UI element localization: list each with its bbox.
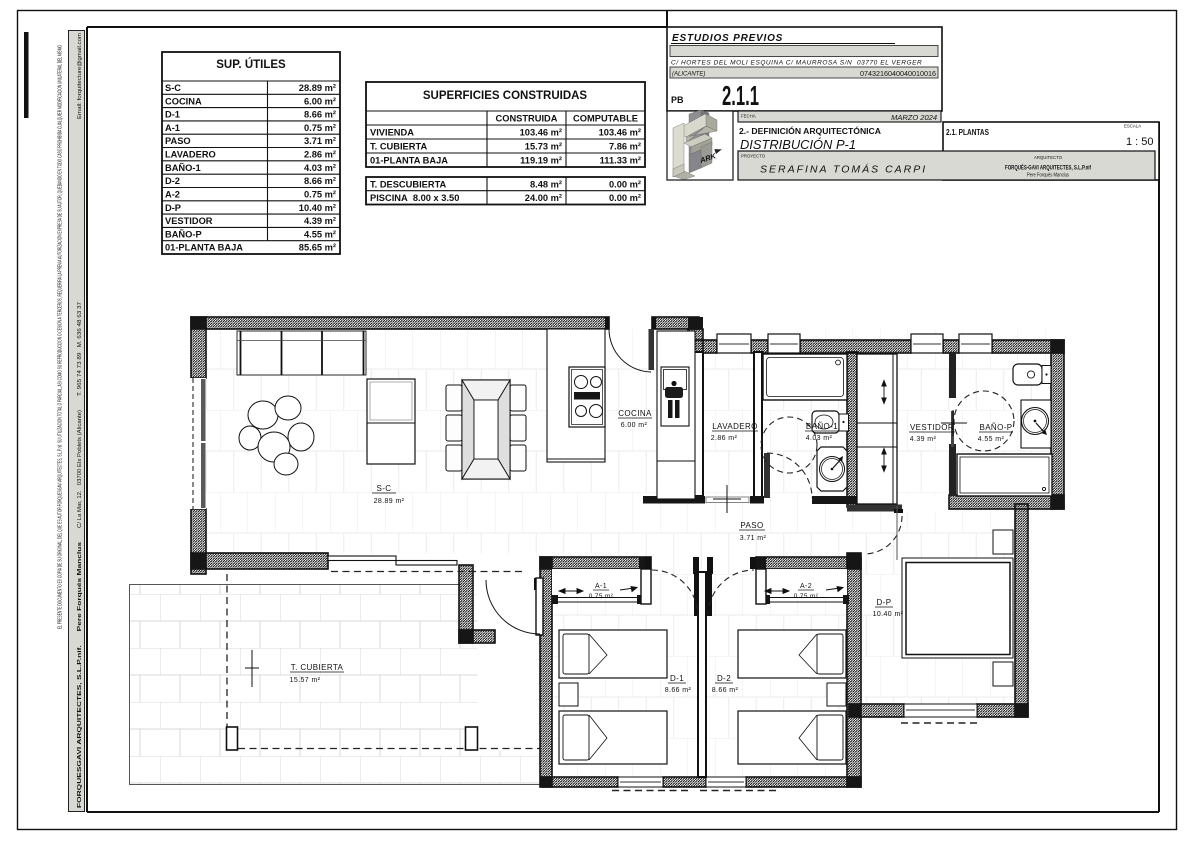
svg-text:01-PLANTA BAJA: 01-PLANTA BAJA (370, 156, 448, 166)
svg-text:COCINA: COCINA (165, 96, 202, 106)
svg-text:BAÑO-P: BAÑO-P (979, 423, 1012, 432)
svg-text:C/ La Mar, 12. 03700 Els Pob: C/ La Mar, 12. 03700 Els Poblets (Alican… (77, 410, 83, 528)
svg-text:28.89 m²: 28.89 m² (374, 498, 405, 505)
svg-text:0.75 m²: 0.75 m² (304, 190, 336, 200)
svg-text:PASO: PASO (740, 521, 763, 530)
svg-text:2.86 m²: 2.86 m² (304, 150, 336, 160)
svg-text:0743216040040010016: 0743216040040010016 (860, 69, 936, 78)
svg-text:10.40 m²: 10.40 m² (873, 611, 904, 618)
svg-text:3.71 m²: 3.71 m² (304, 136, 336, 146)
svg-text:103.46 m²: 103.46 m² (520, 128, 562, 138)
svg-text:24.00 m²: 24.00 m² (525, 193, 562, 203)
svg-text:ARQUITECTO: ARQUITECTO (1034, 155, 1063, 160)
svg-text:A-1: A-1 (595, 583, 607, 590)
svg-text:PROYECTO: PROYECTO (741, 154, 766, 159)
svg-text:FORQUESGAVI ARQUITECTES, S.L.P: FORQUESGAVI ARQUITECTES, S.L.P.nif. Pere… (77, 542, 83, 808)
svg-text:2.1.1: 2.1.1 (722, 80, 759, 111)
svg-text:4.55 m²: 4.55 m² (978, 436, 1005, 443)
svg-text:(ALICANTE): (ALICANTE) (672, 72, 705, 78)
svg-text:ESCALA: ESCALA (1124, 124, 1141, 129)
svg-text:01-PLANTA BAJA: 01-PLANTA BAJA (165, 243, 243, 253)
svg-text:6.00 m²: 6.00 m² (621, 422, 648, 429)
svg-text:BAÑO-P: BAÑO-P (165, 229, 202, 239)
svg-text:85.65 m²: 85.65 m² (299, 243, 336, 253)
svg-text:A-2: A-2 (165, 190, 180, 200)
svg-text:3.71 m²: 3.71 m² (740, 535, 767, 542)
svg-text:0.75 m²: 0.75 m² (304, 123, 336, 133)
svg-text:6.00 m²: 6.00 m² (304, 96, 336, 106)
svg-text:8.66 m²: 8.66 m² (712, 687, 739, 694)
svg-text:MARZO 2024: MARZO 2024 (891, 113, 937, 122)
svg-text:T. CUBIERTA: T. CUBIERTA (370, 142, 427, 152)
svg-text:15.73 m²: 15.73 m² (525, 142, 562, 152)
svg-text:D-P: D-P (165, 203, 181, 213)
svg-text:D-2: D-2 (165, 176, 180, 186)
svg-text:CONSTRUIDA: CONSTRUIDA (496, 114, 558, 124)
svg-text:T. 965 74 73 89 M. 636 48 63: T. 965 74 73 89 M. 636 48 63 37 (77, 302, 83, 396)
svg-text:DISTRIBUCIÓN P-1: DISTRIBUCIÓN P-1 (740, 137, 856, 152)
svg-text:EL PRESENTE DOCUMENTO ES COPIA: EL PRESENTE DOCUMENTO ES COPIA DE SU ORI… (58, 45, 64, 629)
svg-text:ESTUDIOS PREVIOS: ESTUDIOS PREVIOS (672, 33, 783, 44)
svg-text:15.57 m²: 15.57 m² (290, 677, 321, 684)
svg-text:D-P: D-P (877, 598, 892, 607)
svg-text:4.39 m²: 4.39 m² (910, 436, 937, 443)
svg-text:FECHA: FECHA (741, 114, 756, 119)
svg-text:0.00 m²: 0.00 m² (609, 193, 641, 203)
svg-text:PASO: PASO (165, 136, 191, 146)
svg-text:2.1. PLANTAS: 2.1. PLANTAS (946, 128, 989, 137)
svg-text:S-C: S-C (377, 484, 392, 493)
svg-text:Pere Forqués Manclus: Pere Forqués Manclus (1027, 173, 1069, 179)
svg-text:119.19 m²: 119.19 m² (520, 156, 562, 166)
svg-text:A-1: A-1 (165, 123, 180, 133)
svg-text:C/ HORTES DEL MOLI ESQUINA C/: C/ HORTES DEL MOLI ESQUINA C/ MAURROSA S… (671, 60, 922, 67)
svg-text:SERAFINA TOMÁS CARPI: SERAFINA TOMÁS CARPI (760, 163, 927, 176)
svg-text:8.48 m²: 8.48 m² (530, 180, 562, 190)
svg-text:D-1: D-1 (165, 110, 180, 120)
svg-text:1 : 50: 1 : 50 (1126, 136, 1154, 148)
svg-text:2.86 m²: 2.86 m² (711, 435, 738, 442)
svg-text:S-C: S-C (165, 83, 181, 93)
svg-text:8.66 m²: 8.66 m² (304, 110, 336, 120)
svg-text:103.46 m²: 103.46 m² (599, 128, 641, 138)
svg-text:LAVADERO: LAVADERO (712, 422, 758, 431)
svg-text:4.39 m²: 4.39 m² (304, 216, 336, 226)
svg-text:T. DESCUBIERTA: T. DESCUBIERTA (370, 180, 447, 190)
svg-text:COMPUTABLE: COMPUTABLE (573, 114, 638, 124)
svg-text:0.75 m²: 0.75 m² (589, 593, 613, 600)
svg-text:111.33 m²: 111.33 m² (600, 156, 641, 166)
svg-text:COCINA: COCINA (618, 409, 652, 418)
svg-text:D-1: D-1 (670, 674, 684, 683)
svg-text:FORQUÉS-GAVI ARQUITECTES, S.L.: FORQUÉS-GAVI ARQUITECTES, S.L.P.nif (1005, 164, 1092, 172)
svg-text:8.66 m²: 8.66 m² (304, 176, 336, 186)
svg-text:T. CUBIERTA: T. CUBIERTA (291, 663, 344, 672)
svg-text:Email: forquitecture@gmail.com: Email: forquitecture@gmail.com (77, 33, 83, 119)
svg-text:VIVIENDA: VIVIENDA (370, 128, 414, 138)
svg-text:PISCINA 8.00 x 3.50: PISCINA 8.00 x 3.50 (370, 193, 459, 203)
svg-text:4.03 m²: 4.03 m² (304, 163, 336, 173)
svg-text:7.86 m²: 7.86 m² (609, 142, 641, 152)
svg-text:4.03 m²: 4.03 m² (806, 435, 833, 442)
svg-text:4.55 m²: 4.55 m² (304, 229, 336, 239)
svg-text:BAÑO-1: BAÑO-1 (806, 422, 838, 431)
svg-text:8.66 m²: 8.66 m² (665, 687, 692, 694)
svg-text:LAVADERO: LAVADERO (165, 150, 216, 160)
svg-text:VESTIDOR: VESTIDOR (910, 423, 954, 432)
svg-text:PB: PB (671, 95, 684, 105)
svg-text:D-2: D-2 (717, 674, 731, 683)
svg-text:0.00 m²: 0.00 m² (609, 180, 641, 190)
svg-text:VESTIDOR: VESTIDOR (165, 216, 213, 226)
svg-text:BAÑO-1: BAÑO-1 (165, 163, 201, 173)
svg-text:SUPERFICIES CONSTRUIDAS: SUPERFICIES CONSTRUIDAS (423, 90, 588, 102)
svg-text:2.- DEFINICIÓN ARQUITECTÓNICA: 2.- DEFINICIÓN ARQUITECTÓNICA (739, 125, 881, 136)
svg-text:28.89 m²: 28.89 m² (299, 83, 336, 93)
svg-text:A-2: A-2 (800, 583, 812, 590)
svg-text:10.40 m²: 10.40 m² (299, 203, 336, 213)
svg-text:SUP. ÚTILES: SUP. ÚTILES (216, 58, 286, 71)
svg-text:0.75 m²: 0.75 m² (794, 593, 818, 600)
